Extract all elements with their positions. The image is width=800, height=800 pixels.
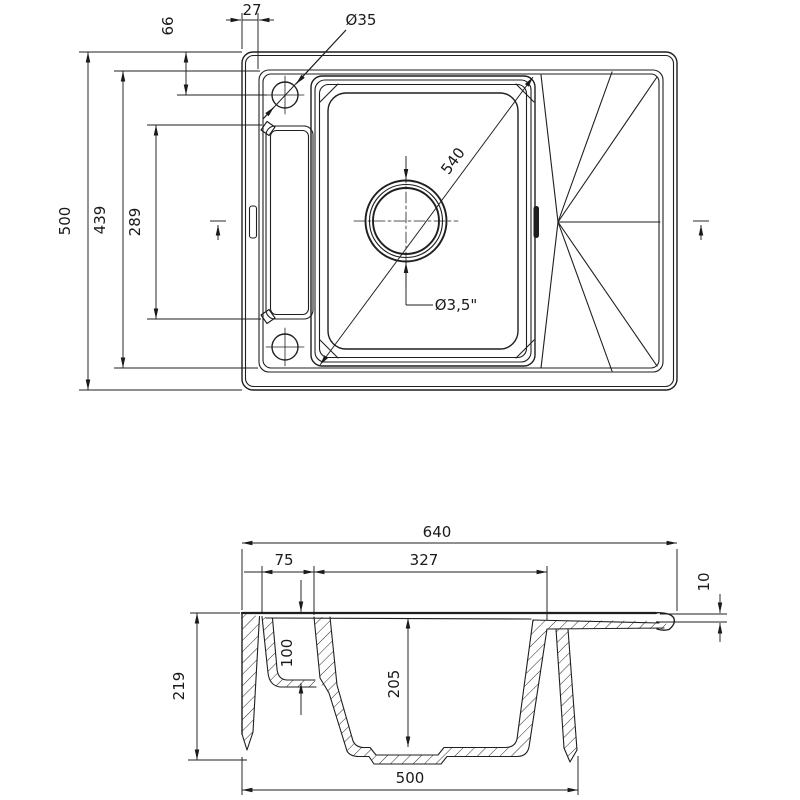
dim-inner-height: 439 <box>91 71 260 368</box>
far-rim-line <box>266 618 531 619</box>
drainboard-grooves <box>541 72 660 371</box>
left-rim-clip-mark <box>250 206 257 238</box>
section-marker-left <box>210 221 226 240</box>
dim-label-inner-height: 439 <box>91 206 109 235</box>
dim-label-overall-depth: 219 <box>170 672 188 701</box>
hatch-base-right-wall <box>556 629 577 762</box>
sink-outer-edge <box>242 52 677 390</box>
dim-label-overall-width: 640 <box>423 523 452 541</box>
dim-recess-width: 75 <box>244 551 314 615</box>
hatch-bowl-walls-floor <box>314 617 547 764</box>
dim-overall-width: 640 <box>242 523 677 611</box>
dim-label-recess-depth: 100 <box>278 639 296 668</box>
dim-label-bowl-depth: 205 <box>385 670 403 699</box>
drain <box>354 172 458 270</box>
dim-bowl-opening: 327 <box>314 551 547 620</box>
dim-edge-offset: 27 <box>226 1 274 69</box>
sink-inner-rim-inner-line <box>263 74 659 368</box>
dim-label-edge-offset: 27 <box>242 1 261 19</box>
dim-overall-depth: 219 <box>170 613 247 760</box>
dim-label-recess-length: 289 <box>126 208 144 237</box>
sink-outer-edge-inner-line <box>246 56 674 387</box>
dim-label-edge-thickness: 10 <box>695 572 713 591</box>
dim-label-tap-hole-diameter: Ø35 <box>346 11 377 29</box>
dim-label-recess-width: 75 <box>274 551 293 569</box>
dim-label-drain-diameter: Ø3,5" <box>435 296 478 314</box>
dim-label-hole-top-offset: 66 <box>159 16 177 35</box>
hatch-left-wall <box>242 613 260 750</box>
dim-label-bowl-diagonal: 540 <box>437 144 469 178</box>
dim-label-outer-height: 500 <box>56 207 74 236</box>
top-view: 500 439 289 66 27 <box>56 1 709 390</box>
dim-label-base-width: 500 <box>396 769 425 787</box>
section-view: 640 75 327 10 219 <box>170 523 727 795</box>
dim-bowl-depth: 205 <box>385 618 408 747</box>
dim-recess-depth: 100 <box>278 580 301 715</box>
ledge-recess <box>261 122 313 324</box>
tap-hole-bottom <box>266 328 304 366</box>
dim-bowl-diagonal: 540 <box>320 77 533 365</box>
technical-drawing-page: 500 439 289 66 27 <box>0 0 800 800</box>
section-marker-right <box>693 221 709 240</box>
dim-label-bowl-opening: 327 <box>410 551 439 569</box>
dim-edge-thickness: 10 <box>656 572 727 642</box>
sink-technical-drawing: 500 439 289 66 27 <box>0 0 800 800</box>
